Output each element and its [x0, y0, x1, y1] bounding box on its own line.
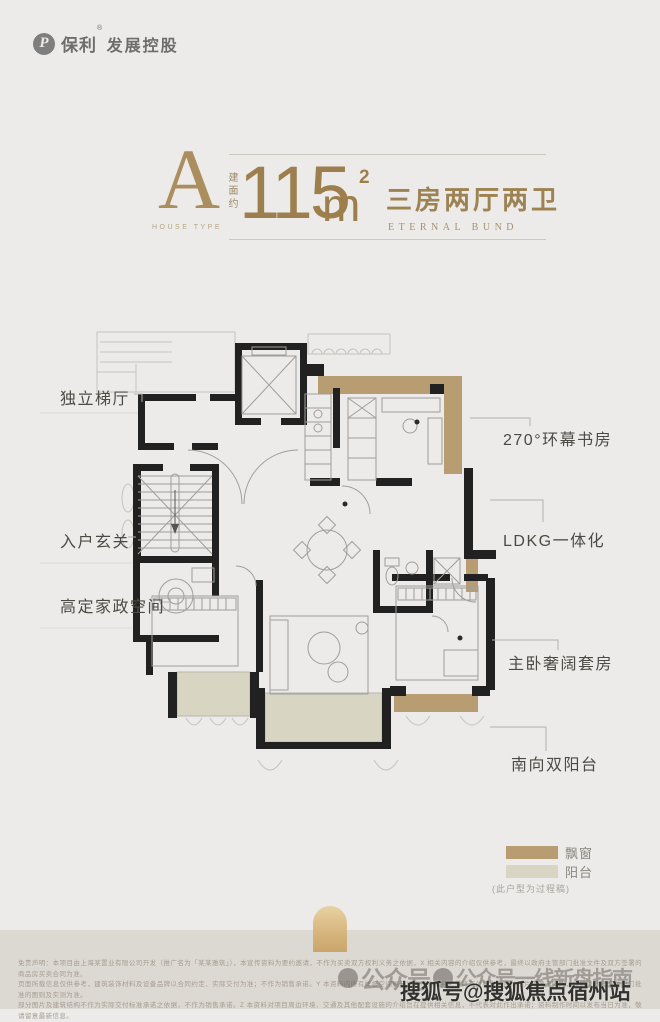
house-type-caption: HOUSE TYPE: [152, 224, 222, 231]
registered-mark: ®: [97, 25, 102, 32]
label-elevator-hall: 独立梯厅: [60, 385, 130, 409]
legend: 飘窗 阳台: [506, 845, 593, 883]
project-subtitle: ETERNAL BUND: [388, 222, 518, 233]
watermark-sohu: 搜狐号@搜狐焦点宿州站: [400, 976, 630, 1006]
railing-topright: [308, 334, 390, 354]
brand-name: 保利® 发展控股: [61, 31, 179, 56]
label-south-balconies: 南向双阳台: [511, 751, 599, 775]
bay-window-areas: [318, 376, 478, 712]
legend-label-bay-window: 飘窗: [565, 843, 593, 862]
label-master-suite: 主卧奢阔套房: [508, 650, 613, 674]
bay-window-swatch: [506, 846, 558, 859]
poly-logo-icon: P: [33, 33, 55, 55]
title-hairline-bottom: [229, 239, 546, 240]
legend-note: (此户型为过程稿): [492, 882, 570, 895]
label-housekeeping-space: 高定家政空间: [60, 593, 165, 617]
area-prefix: 建面约: [227, 172, 238, 211]
label-ldkg-integration: LDKG一体化: [503, 527, 605, 551]
label-panoramic-study: 270°环幕书房: [503, 426, 612, 450]
room-count-label: 三房两厅两卫: [386, 180, 560, 217]
brand-logo: P 保利® 发展控股: [33, 31, 179, 56]
label-entrance-foyer: 入户玄关: [60, 528, 130, 552]
area-exponent: 2: [359, 167, 370, 189]
legend-label-balcony: 阳台: [565, 862, 593, 881]
watermark-logo-icon: [338, 968, 358, 988]
balcony-swatch: [506, 865, 558, 878]
legend-item-balcony: 阳台: [506, 864, 593, 878]
house-type-letter: A: [158, 136, 214, 222]
brand-suffix: 发展控股: [107, 38, 179, 55]
arch-decoration: [313, 906, 347, 952]
legend-item-bay-window: 飘窗: [506, 845, 593, 859]
area-unit: m: [322, 182, 360, 228]
balcony-areas: [177, 672, 382, 742]
